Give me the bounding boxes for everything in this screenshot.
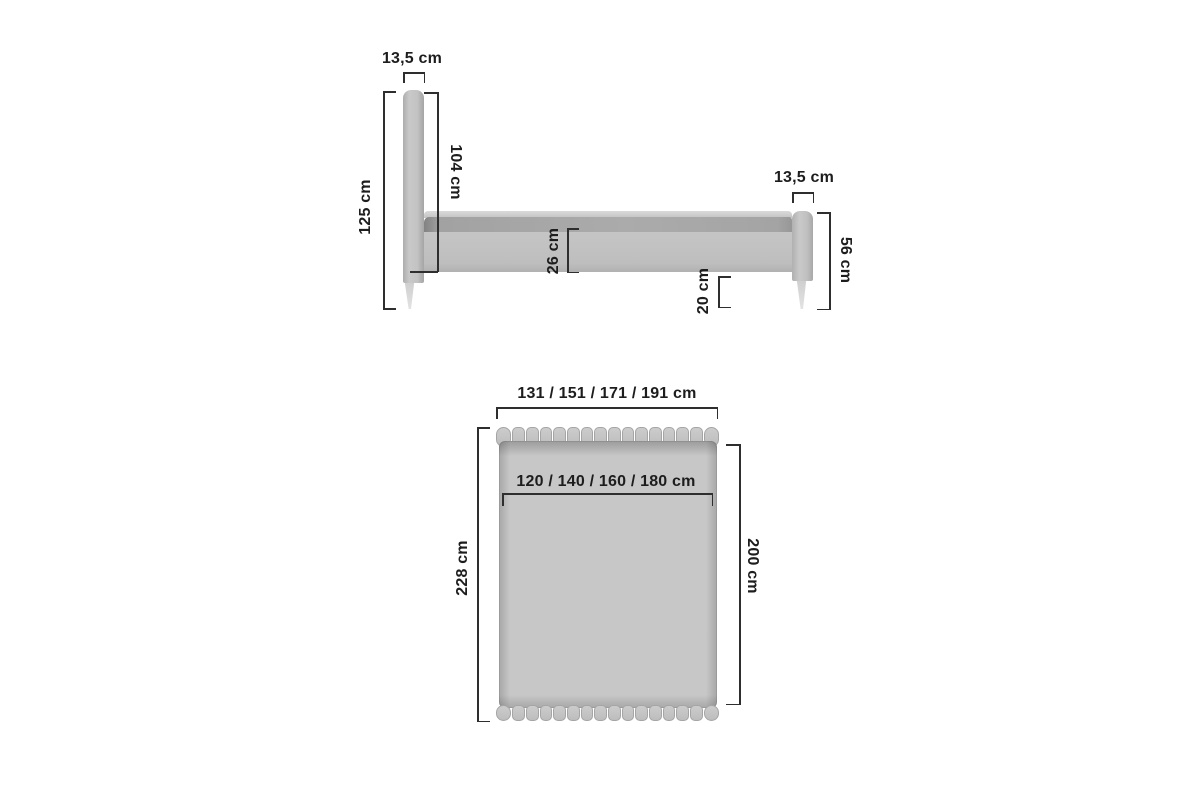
outer-length-tick-top (477, 427, 490, 429)
footboard-width-tick-right (813, 192, 815, 203)
footboard-width-tick-left (792, 192, 794, 203)
tuft-segment (526, 705, 539, 721)
headboard-panel-tick-bottom (410, 271, 438, 273)
outer-width-tick-right (717, 407, 719, 419)
tuft-segment (496, 705, 511, 721)
footboard-height-label: 56 cm (836, 237, 854, 283)
headboard-side (403, 90, 424, 283)
tuft-segment (540, 705, 553, 721)
headboard-width-label: 13,5 cm (382, 50, 442, 68)
clearance-line (718, 276, 720, 308)
outer-width-tick-left (496, 407, 498, 419)
headboard-width-line (403, 72, 425, 74)
tuft-segment (581, 705, 594, 721)
side-rail-tick-top (567, 228, 579, 230)
side-rail (424, 232, 792, 272)
tuft-segment (635, 705, 648, 721)
outer-length-line (477, 427, 479, 722)
mattress-length-tick-top (726, 444, 740, 446)
headboard-panel-tick-top (424, 92, 438, 94)
bed-frame-side (424, 211, 792, 272)
mattress-width-tick-right (712, 493, 714, 506)
clearance-tick-top (718, 276, 731, 278)
outer-length-label: 228 cm (454, 540, 472, 595)
side-rail-tick-bottom (567, 272, 579, 274)
footboard-height-tick-bottom (817, 309, 830, 311)
headboard-panel-line (437, 92, 439, 272)
headboard-panel-height-label: 104 cm (446, 144, 464, 199)
tuft-segment (553, 705, 566, 721)
side-rail-height-label: 26 cm (545, 228, 563, 274)
mattress-length-label: 200 cm (743, 538, 761, 593)
mattress-width-tick-left (502, 493, 504, 506)
footboard-tuft-row (496, 705, 719, 721)
total-height-tick-bottom (383, 308, 396, 310)
outer-length-tick-bottom (477, 721, 490, 723)
footboard-width-line (792, 192, 814, 194)
outer-width-label: 131 / 151 / 171 / 191 cm (517, 385, 696, 403)
tuft-segment (649, 705, 662, 721)
tuft-segment (663, 705, 676, 721)
mattress-length-tick-bottom (726, 704, 740, 706)
footboard-height-tick-top (817, 212, 830, 214)
side-rail-line (567, 228, 569, 273)
clearance-tick-bottom (718, 307, 731, 309)
footboard-leg (796, 281, 807, 309)
mattress-band (424, 217, 792, 232)
total-height-line (383, 91, 385, 309)
headboard-leg (404, 283, 415, 309)
total-height-label: 125 cm (357, 179, 375, 234)
footboard-width-label: 13,5 cm (774, 169, 834, 187)
footboard-height-line (829, 212, 831, 310)
headboard-width-tick-right (424, 72, 426, 83)
tuft-segment (704, 705, 719, 721)
tuft-segment (676, 705, 689, 721)
mattress-width-line (502, 493, 713, 495)
clearance-label: 20 cm (695, 268, 713, 314)
total-height-tick-top (383, 91, 396, 93)
tuft-segment (594, 705, 607, 721)
headboard-width-tick-left (403, 72, 405, 83)
tuft-segment (512, 705, 525, 721)
mattress-length-line (739, 444, 741, 705)
outer-width-line (496, 407, 718, 409)
mattress-width-label: 120 / 140 / 160 / 180 cm (516, 473, 695, 491)
tuft-segment (622, 705, 635, 721)
tuft-segment (567, 705, 580, 721)
footboard-side (792, 211, 813, 281)
bed-dimensions-diagram: 13,5 cm 125 cm 104 cm 26 cm 20 cm 56 cm … (0, 0, 1200, 800)
tuft-segment (608, 705, 621, 721)
tuft-segment (690, 705, 703, 721)
